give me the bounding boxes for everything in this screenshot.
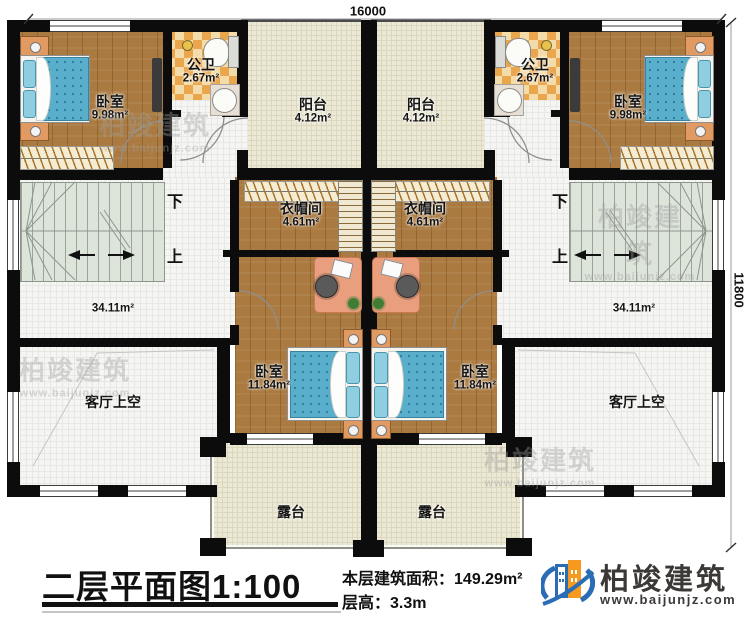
wall-stub-bedroom-bl xyxy=(230,325,239,345)
tv-cabinet xyxy=(152,58,162,112)
nightstand xyxy=(685,120,714,141)
label-stair-down-left: 下 xyxy=(167,188,183,212)
office-chair xyxy=(315,275,338,298)
floor-height-value: 3.3m xyxy=(390,595,426,612)
pillow xyxy=(374,386,388,418)
staircase-right xyxy=(569,182,714,282)
nightstand xyxy=(20,36,49,57)
label-bedroom-bottom-right: 卧室11.84m² xyxy=(454,363,496,392)
balcony-railing-right xyxy=(371,19,491,22)
label-bedroom-top-right: 卧室9.98m² xyxy=(610,93,646,122)
wall-stub-balcony-right xyxy=(484,150,495,180)
wall-void-east-left xyxy=(217,338,230,443)
nightstand xyxy=(685,36,714,57)
wall-under-balcony-l xyxy=(248,168,361,180)
label-balcony-right: 阳台4.12m² xyxy=(403,96,439,125)
title-underline-2 xyxy=(42,611,341,613)
pillow xyxy=(698,60,711,88)
label-void-right: 客厅上空 xyxy=(609,394,665,410)
window-left-void xyxy=(7,392,20,462)
window-right-void xyxy=(712,392,725,462)
cloak-closet xyxy=(394,181,490,202)
nightstand xyxy=(20,120,49,141)
plant xyxy=(348,298,359,309)
wardrobe xyxy=(20,146,114,170)
wall-cloak-divider-right xyxy=(393,250,509,257)
pillow xyxy=(23,90,36,118)
wall-void-west-right xyxy=(502,338,515,443)
post-terrace-right-top xyxy=(506,437,532,457)
label-hall-right-area: 34.11m² xyxy=(613,302,655,315)
dimension-top: 16000 xyxy=(350,4,386,19)
floor-area-line: 本层建筑面积：149.29m² xyxy=(342,565,523,589)
wall-bath-left-west xyxy=(163,20,172,168)
nightstand xyxy=(371,329,391,348)
nightstand xyxy=(343,329,363,348)
floor-balcony-right xyxy=(371,20,491,170)
floor-balcony-left xyxy=(241,20,361,170)
bath-light xyxy=(541,40,552,51)
pillow xyxy=(374,352,388,384)
post-terrace-center-bottom xyxy=(353,540,384,557)
wall-bath-left-south-stub xyxy=(163,110,181,117)
floor-void-left xyxy=(20,345,219,486)
dimension-right: 11800 xyxy=(732,272,747,307)
label-cloakroom-left: 衣帽间4.61m² xyxy=(280,200,322,229)
office-chair xyxy=(396,275,419,298)
label-stair-up-right: 上 xyxy=(552,243,568,267)
floor-terrace-right xyxy=(371,437,524,549)
window-bedroom-br-south xyxy=(419,433,485,445)
toilet-tank xyxy=(228,36,239,68)
nightstand xyxy=(343,420,363,439)
floor-terrace-left xyxy=(210,437,363,549)
label-bathroom-left: 公卫2.67m² xyxy=(183,56,219,85)
label-terrace-right: 露台 xyxy=(418,504,446,520)
tv-cabinet xyxy=(570,58,580,112)
cloak-shelving xyxy=(371,180,396,252)
post-terrace-right-bottom xyxy=(506,538,532,556)
floor-void-right xyxy=(513,345,712,486)
staircase-left xyxy=(20,182,165,282)
pillow xyxy=(23,60,36,88)
label-bedroom-bottom-left: 卧室11.84m² xyxy=(248,363,290,392)
label-stair-down-right: 下 xyxy=(552,188,568,212)
floor-height-line: 层高：3.3m xyxy=(342,589,426,613)
label-void-left: 客厅上空 xyxy=(85,394,141,410)
cloak-shelving xyxy=(338,180,363,252)
floor-area-value: 149.29m² xyxy=(454,571,523,588)
bed-sheet xyxy=(330,351,346,418)
window-top-right xyxy=(602,20,682,32)
label-hall-left-area: 34.11m² xyxy=(92,302,134,315)
wall-stub-bedroom-br xyxy=(493,325,502,345)
pillow xyxy=(346,352,360,384)
sink-basin xyxy=(497,88,522,113)
nightstand xyxy=(371,420,391,439)
label-stair-up-left: 上 xyxy=(167,243,183,267)
plan-scale: 1:100 xyxy=(212,568,301,605)
label-bedroom-top-left: 卧室9.98m² xyxy=(92,93,128,122)
window-top-left xyxy=(50,20,130,32)
label-cloakroom-right: 衣帽间4.61m² xyxy=(404,200,446,229)
window-void-bottom-left-1 xyxy=(40,485,98,497)
pillow xyxy=(346,386,360,418)
pillow xyxy=(698,90,711,118)
window-right-stair xyxy=(712,200,725,270)
wall-stub-balcony-left xyxy=(237,150,248,180)
plan-title: 二层平面图1:100 xyxy=(42,560,301,608)
sink-basin xyxy=(212,88,237,113)
brand-website: www.baijunjz.com xyxy=(600,592,736,607)
floor-plan-page: 卧室9.98m² 公卫2.67m² 阳台4.12m² 阳台4.12m² 公卫2.… xyxy=(0,0,750,622)
label-bathroom-right: 公卫2.67m² xyxy=(517,56,553,85)
label-balcony-left: 阳台4.12m² xyxy=(295,96,331,125)
wall-bath-right-south-stub xyxy=(551,110,569,117)
wardrobe xyxy=(620,146,714,170)
post-terrace-left-top xyxy=(200,437,226,457)
cloak-closet xyxy=(244,181,340,202)
wall-bath-right-east xyxy=(560,20,569,168)
post-terrace-left-bottom xyxy=(200,538,226,556)
window-void-bottom-right-1 xyxy=(546,485,604,497)
bath-light xyxy=(182,40,193,51)
window-void-bottom-right-2 xyxy=(634,485,692,497)
window-void-bottom-left-2 xyxy=(128,485,186,497)
label-terrace-left: 露台 xyxy=(277,504,305,520)
title-underline xyxy=(42,602,338,607)
plant xyxy=(373,298,384,309)
wall-hall-cloak-right xyxy=(493,180,502,292)
plan-title-text: 二层平面图 xyxy=(42,568,212,605)
wall-void-top-right xyxy=(502,338,725,347)
balcony-railing-left xyxy=(241,19,361,22)
bed-sheet xyxy=(683,57,698,121)
window-left-stair xyxy=(7,200,20,270)
brand-logo-icon xyxy=(541,554,595,610)
wall-cloak-divider-left xyxy=(223,250,339,257)
wall-under-balcony-r xyxy=(371,168,484,180)
wall-void-top-left xyxy=(7,338,230,347)
wall-hall-cloak-left xyxy=(230,180,239,292)
window-bedroom-bl-south xyxy=(247,433,313,445)
